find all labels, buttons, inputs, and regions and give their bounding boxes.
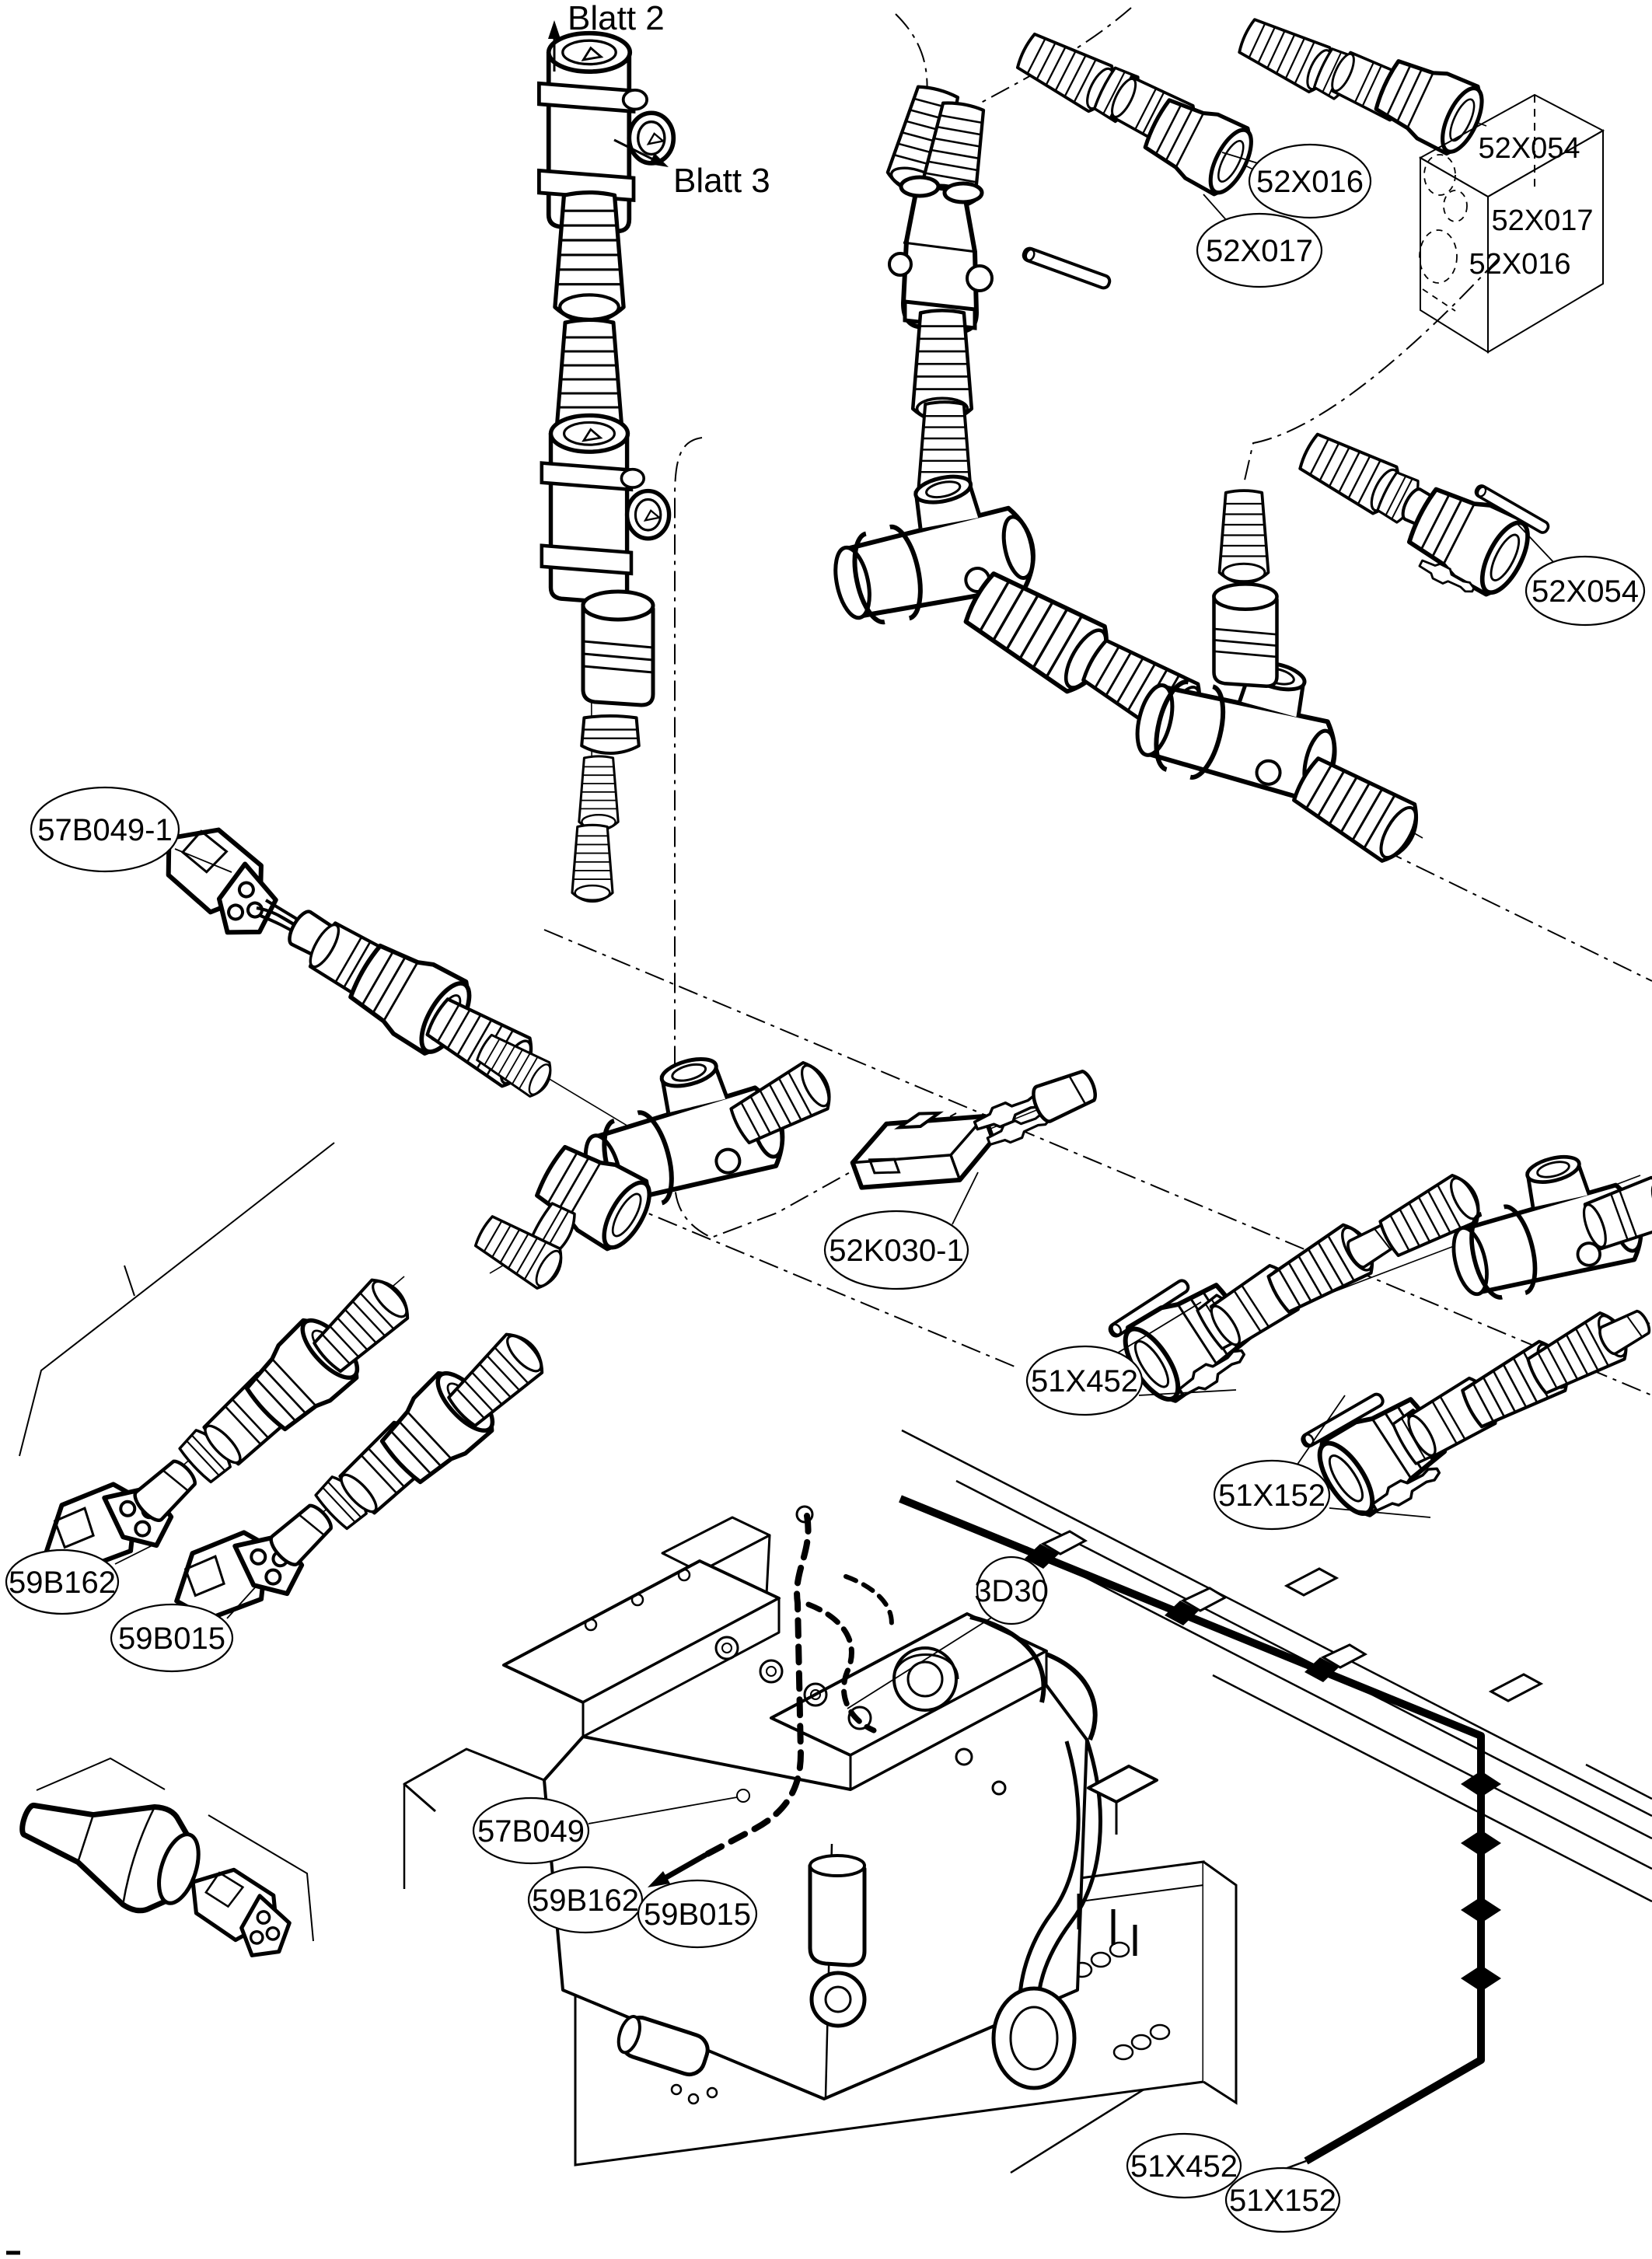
part-clamp-nut (582, 716, 639, 753)
chain-top-right-upper-row (1235, 13, 1491, 160)
callout-52x016-top: 52X016 (1249, 145, 1371, 218)
callout-59b015-engine: 59B015 (638, 1880, 756, 1947)
callout-label: 3D30 (974, 1574, 1049, 1608)
callout-51x152-mid: 51X152 (1214, 1461, 1329, 1529)
callout-leader-lines (115, 152, 1555, 1824)
callout-label: 51X152 (1218, 1479, 1325, 1513)
callout-label: 52X017 (1206, 234, 1313, 268)
inset-box-label-52x016: 52X016 (1469, 248, 1570, 281)
callout-3d30: 3D30 (974, 1557, 1049, 1624)
chain-57b049-1 (145, 814, 837, 1294)
part-corrugated-boot (1287, 749, 1427, 868)
callout-label: 57B049 (477, 1814, 585, 1849)
part-cylinder-coupling (583, 592, 653, 705)
blatt2-text: Blatt 2 (568, 0, 665, 37)
callout-59b162-left: 59B162 (6, 1550, 118, 1614)
chain-52k030-1 (844, 1067, 1100, 1212)
callout-52k030-1: 52K030-1 (825, 1211, 968, 1289)
inset-box-label-52x054: 52X054 (1478, 132, 1580, 165)
blatt3-text: Blatt 3 (673, 162, 770, 200)
callout-label: 59B015 (118, 1622, 225, 1656)
part-3pin-connector (179, 1860, 299, 1962)
part-sleeve (1029, 1067, 1100, 1124)
callout-label: 59B015 (644, 1898, 751, 1932)
rail-clip-block (1491, 1674, 1541, 1701)
callout-57b049-1: 57B049-1 (31, 787, 179, 871)
up-arrowhead (548, 20, 561, 39)
part-corrugated-boot (572, 825, 613, 901)
part-tee-connector (542, 415, 669, 602)
part-corrugated-boot (555, 193, 623, 322)
chain-52x054 (1295, 428, 1550, 602)
part-cylinder-coupling (1214, 584, 1277, 686)
rail-clip-block (1287, 1569, 1336, 1595)
callout-label: 52X054 (1532, 574, 1639, 609)
parts-diagram-canvas: 52X054 52X017 52X016 Blatt 2 Blatt 3 52X… (0, 0, 1652, 2259)
callout-label: 51X152 (1229, 2184, 1336, 2218)
callout-label: 59B162 (532, 1884, 639, 1918)
callout-57b049-engine: 57B049 (473, 1798, 589, 1863)
part-corrugated-boot (579, 756, 618, 830)
callout-51x152-bottom: 51X152 (1226, 2168, 1339, 2232)
callout-51x452-mid: 51X452 (1027, 1346, 1142, 1415)
callout-label: 57B049-1 (37, 813, 172, 847)
callout-label: 51X452 (1031, 1364, 1138, 1398)
cable-routing-dashdot-lines (544, 8, 1652, 1395)
part-box-connector (844, 1091, 1002, 1213)
callout-label: 52X016 (1256, 165, 1364, 199)
part-funnel-boot (8, 1768, 211, 1925)
callout-59b015-left: 59B015 (111, 1604, 232, 1671)
callout-label: 59B162 (9, 1566, 116, 1600)
part-threaded-boot (1220, 491, 1269, 583)
part-y-connector (889, 177, 992, 331)
panel-boundary-marks (6, 1143, 334, 2253)
callout-label: 51X452 (1130, 2149, 1238, 2184)
callout-59b162-engine: 59B162 (529, 1867, 642, 1933)
callout-52x054-right: 52X054 (1526, 557, 1644, 625)
callout-label: 52K030-1 (829, 1234, 963, 1268)
group-boot-and-connector-bottom-left (8, 1768, 299, 1963)
callout-52x017-top: 52X017 (1197, 214, 1322, 287)
inset-box-label-52x017: 52X017 (1491, 204, 1593, 237)
chain-51x152 (1301, 1307, 1652, 1524)
callout-51x452-bottom: 51X452 (1127, 2134, 1241, 2198)
part-pin (1022, 247, 1111, 290)
